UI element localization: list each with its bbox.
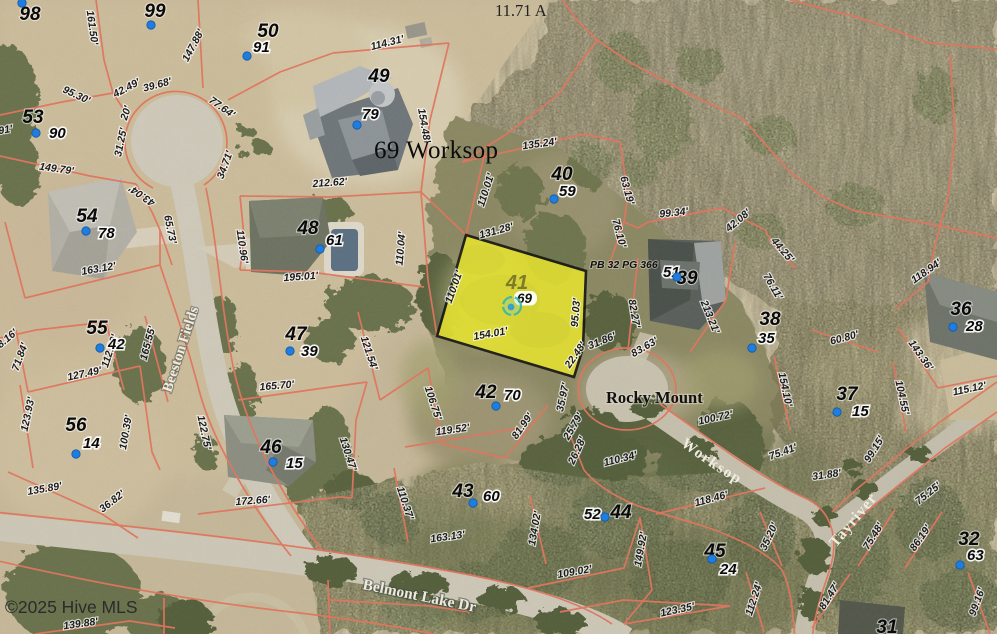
- svg-text:48: 48: [296, 218, 319, 239]
- svg-text:95.03': 95.03': [569, 297, 584, 327]
- svg-text:©2025 Hive MLS: ©2025 Hive MLS: [5, 597, 138, 617]
- svg-text:Rocky Mount: Rocky Mount: [606, 388, 703, 407]
- svg-text:46: 46: [259, 437, 282, 458]
- svg-text:11.71 A: 11.71 A: [495, 1, 547, 20]
- svg-text:172.66': 172.66': [235, 494, 271, 508]
- svg-text:60: 60: [483, 488, 500, 505]
- svg-text:79: 79: [362, 106, 379, 123]
- svg-text:38: 38: [759, 309, 781, 330]
- svg-text:90: 90: [49, 125, 66, 142]
- svg-text:44: 44: [609, 502, 632, 523]
- svg-text:37: 37: [836, 384, 859, 405]
- svg-text:43: 43: [451, 481, 474, 502]
- svg-text:49: 49: [367, 66, 390, 87]
- svg-text:35: 35: [758, 330, 775, 347]
- svg-text:42: 42: [474, 382, 497, 403]
- svg-text:15: 15: [286, 455, 303, 472]
- svg-text:56: 56: [65, 415, 87, 436]
- svg-text:40: 40: [550, 164, 573, 185]
- svg-text:91: 91: [253, 39, 270, 56]
- svg-text:195.01': 195.01': [283, 270, 319, 284]
- svg-text:28: 28: [965, 318, 983, 335]
- svg-text:78: 78: [98, 225, 115, 242]
- svg-text:63: 63: [967, 547, 984, 564]
- svg-text:69 Worksop: 69 Worksop: [374, 137, 498, 164]
- svg-text:55: 55: [86, 318, 108, 339]
- svg-text:47: 47: [284, 324, 308, 345]
- svg-text:99: 99: [144, 1, 166, 22]
- svg-text:52: 52: [584, 506, 601, 523]
- svg-text:54: 54: [76, 206, 98, 227]
- svg-text:61: 61: [326, 232, 343, 249]
- svg-text:31: 31: [876, 617, 897, 634]
- svg-text:24: 24: [719, 561, 737, 578]
- svg-text:70: 70: [504, 387, 521, 404]
- svg-text:42: 42: [107, 336, 125, 353]
- svg-text:59: 59: [559, 183, 576, 200]
- svg-text:36: 36: [950, 299, 972, 320]
- svg-text:53: 53: [22, 107, 44, 128]
- svg-text:212.62': 212.62': [311, 176, 348, 190]
- svg-text:39: 39: [301, 343, 318, 360]
- svg-text:PB 32 PG 366: PB 32 PG 366: [590, 259, 658, 271]
- svg-text:15: 15: [852, 403, 869, 420]
- svg-text:14: 14: [83, 435, 100, 452]
